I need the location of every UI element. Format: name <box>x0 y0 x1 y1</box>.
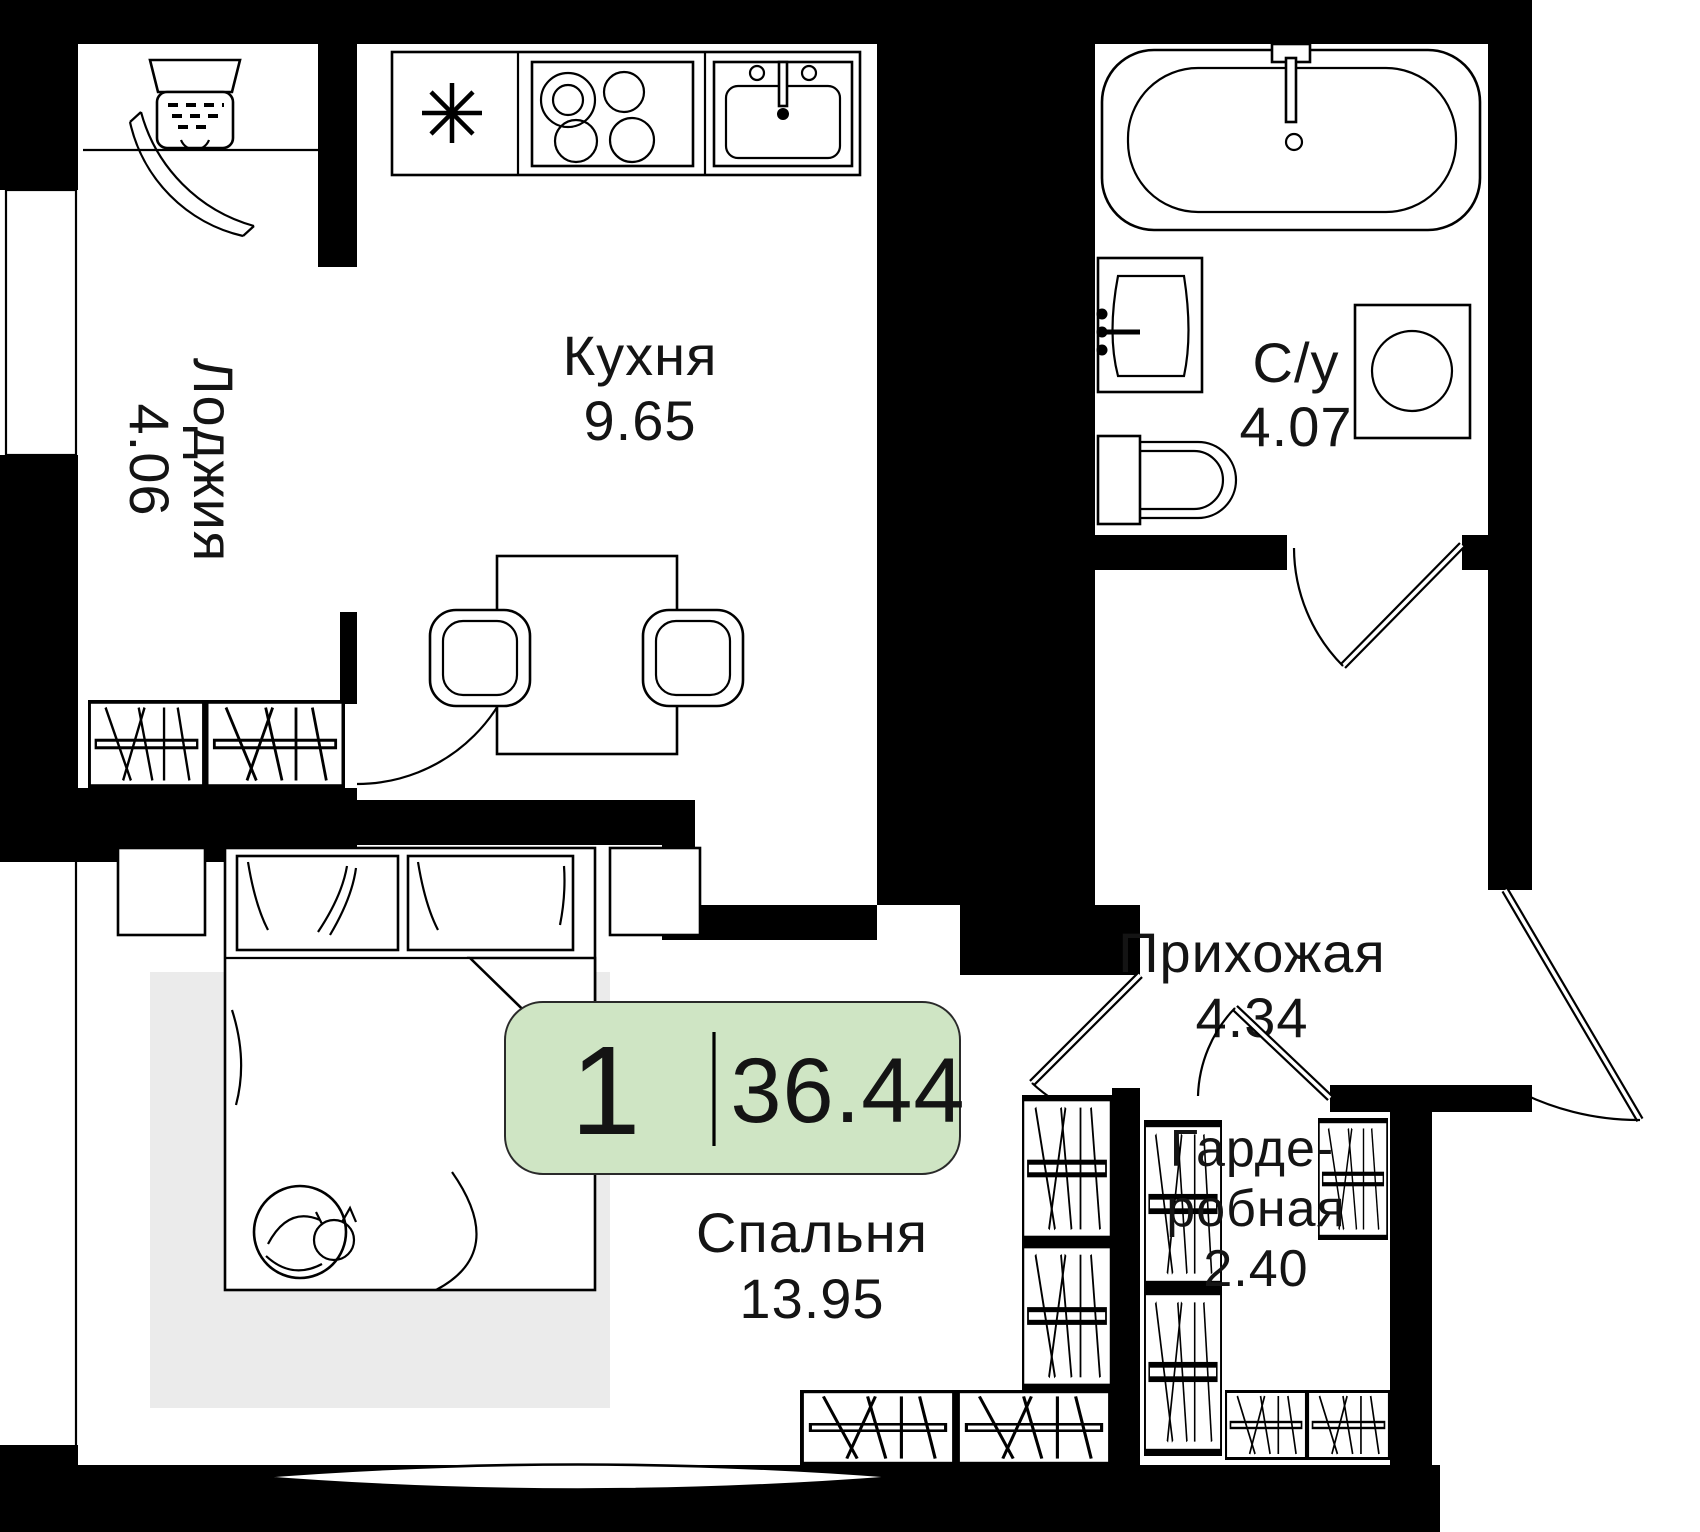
room-bathroom: С/у 4.07 <box>1097 44 1481 666</box>
hallway-label: Прихожая <box>1118 921 1386 984</box>
wall-bathroom-bottom <box>1095 535 1287 570</box>
closet-icon <box>958 1392 1110 1464</box>
wall-loggia-stub <box>340 612 357 704</box>
bathroom-area: 4.07 <box>1240 395 1353 458</box>
area-badge: 1 36.44 <box>505 1002 966 1174</box>
bedroom-label: Спальня <box>696 1201 928 1264</box>
closet-icon <box>207 702 344 786</box>
washing-machine-icon <box>1355 305 1470 438</box>
washbasin-icon <box>1097 258 1203 392</box>
loggia-label: Лоджия <box>182 358 245 562</box>
shaft-cell-2 <box>893 153 1080 348</box>
bathroom-door-arc <box>1294 548 1343 666</box>
closet-icon <box>1023 1245 1111 1387</box>
wall-top <box>0 0 1532 44</box>
nightstand-icon <box>118 848 205 935</box>
shaft-cell-1 <box>893 48 1080 140</box>
badge-rooms-count: 1 <box>570 1020 641 1161</box>
loggia-window-opening <box>6 190 76 455</box>
washer-dryer-icon <box>150 60 240 150</box>
floor-plan-svg: Лоджия 4.06 <box>0 0 1700 1532</box>
chair-icon <box>430 610 530 706</box>
closet-icon <box>1023 1098 1111 1239</box>
ventilation-shaft <box>877 32 1095 905</box>
bathtub-icon <box>1102 44 1480 230</box>
wall-bottom-left-corner <box>0 1445 78 1532</box>
badge-total-area: 36.44 <box>730 1040 965 1142</box>
room-loggia: Лоджия 4.06 <box>83 60 343 786</box>
wall-wardrobe-right <box>1390 1112 1432 1465</box>
wall-kitchen-hall-chunk <box>960 905 1140 975</box>
bedroom-area: 13.95 <box>739 1267 884 1330</box>
toilet-icon <box>1098 436 1236 524</box>
closet-icon <box>89 702 203 786</box>
wall-left-upper <box>0 0 78 190</box>
nightstand-icon <box>610 848 700 935</box>
wardrobe-area: 2.40 <box>1203 1240 1308 1298</box>
room-kitchen: Кухня 9.65 <box>357 52 860 784</box>
floor-plan: Лоджия 4.06 <box>0 0 1700 1532</box>
wardrobe-label-line2: робная <box>1166 1180 1345 1238</box>
stove-icon <box>532 62 693 166</box>
room-wardrobe: Гарде- робная 2.40 <box>1145 1008 1389 1459</box>
closet-icon <box>802 1392 954 1464</box>
shaft-cell-3 <box>893 361 1080 889</box>
wall-loggia-kitchen <box>318 38 357 267</box>
kitchen-label: Кухня <box>563 324 718 387</box>
loggia-area: 4.06 <box>118 404 181 517</box>
wall-bathroom-jamb <box>1462 535 1488 570</box>
wall-bedroom-top <box>0 800 695 845</box>
pillow-icon <box>237 856 398 950</box>
asterisk-icon <box>422 83 482 143</box>
wardrobe-label-line1: Гарде- <box>1170 1120 1334 1178</box>
bathroom-door <box>1294 545 1462 666</box>
wall-hall-wardrobe-jog <box>1330 1085 1532 1112</box>
wall-right-upper <box>1488 0 1532 890</box>
closet-icon <box>1226 1392 1306 1459</box>
chair-icon <box>643 610 743 706</box>
closet-icon <box>1308 1392 1389 1459</box>
pillow-icon <box>408 856 573 950</box>
wall-bedroom-wardrobe-pier <box>1112 1088 1140 1465</box>
kitchen-sink-icon <box>714 62 852 166</box>
closet-icon <box>1145 1292 1221 1453</box>
bathroom-label: С/у <box>1253 331 1340 394</box>
kitchen-area: 9.65 <box>584 389 697 452</box>
